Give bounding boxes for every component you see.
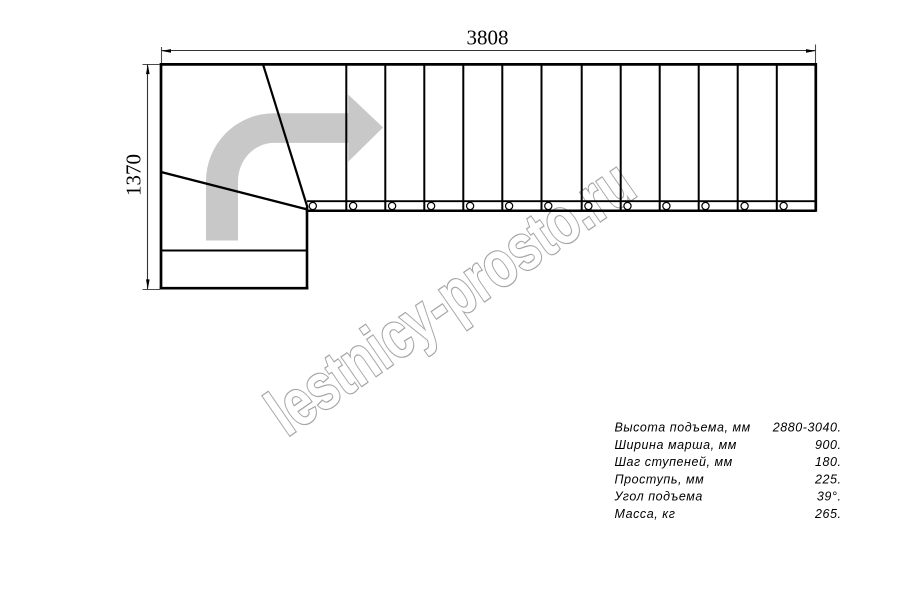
- svg-text:180.: 180.: [815, 455, 842, 469]
- svg-text:39°.: 39°.: [817, 490, 842, 504]
- svg-text:1370: 1370: [122, 154, 146, 196]
- svg-text:Высота подъема, мм: Высота подъема, мм: [615, 421, 751, 435]
- svg-text:265.: 265.: [814, 507, 842, 521]
- svg-text:Проступь, мм: Проступь, мм: [615, 472, 705, 486]
- svg-text:Масса, кг: Масса, кг: [615, 507, 676, 521]
- svg-text:2880-3040.: 2880-3040.: [772, 421, 842, 435]
- svg-text:3808: 3808: [467, 26, 509, 50]
- svg-text:Угол подъема: Угол подъема: [614, 490, 703, 504]
- svg-text:Ширина марша, мм: Ширина марша, мм: [615, 438, 737, 452]
- svg-text:225.: 225.: [814, 472, 842, 486]
- svg-text:Шаг ступеней, мм: Шаг ступеней, мм: [615, 455, 733, 469]
- svg-text:900.: 900.: [815, 438, 842, 452]
